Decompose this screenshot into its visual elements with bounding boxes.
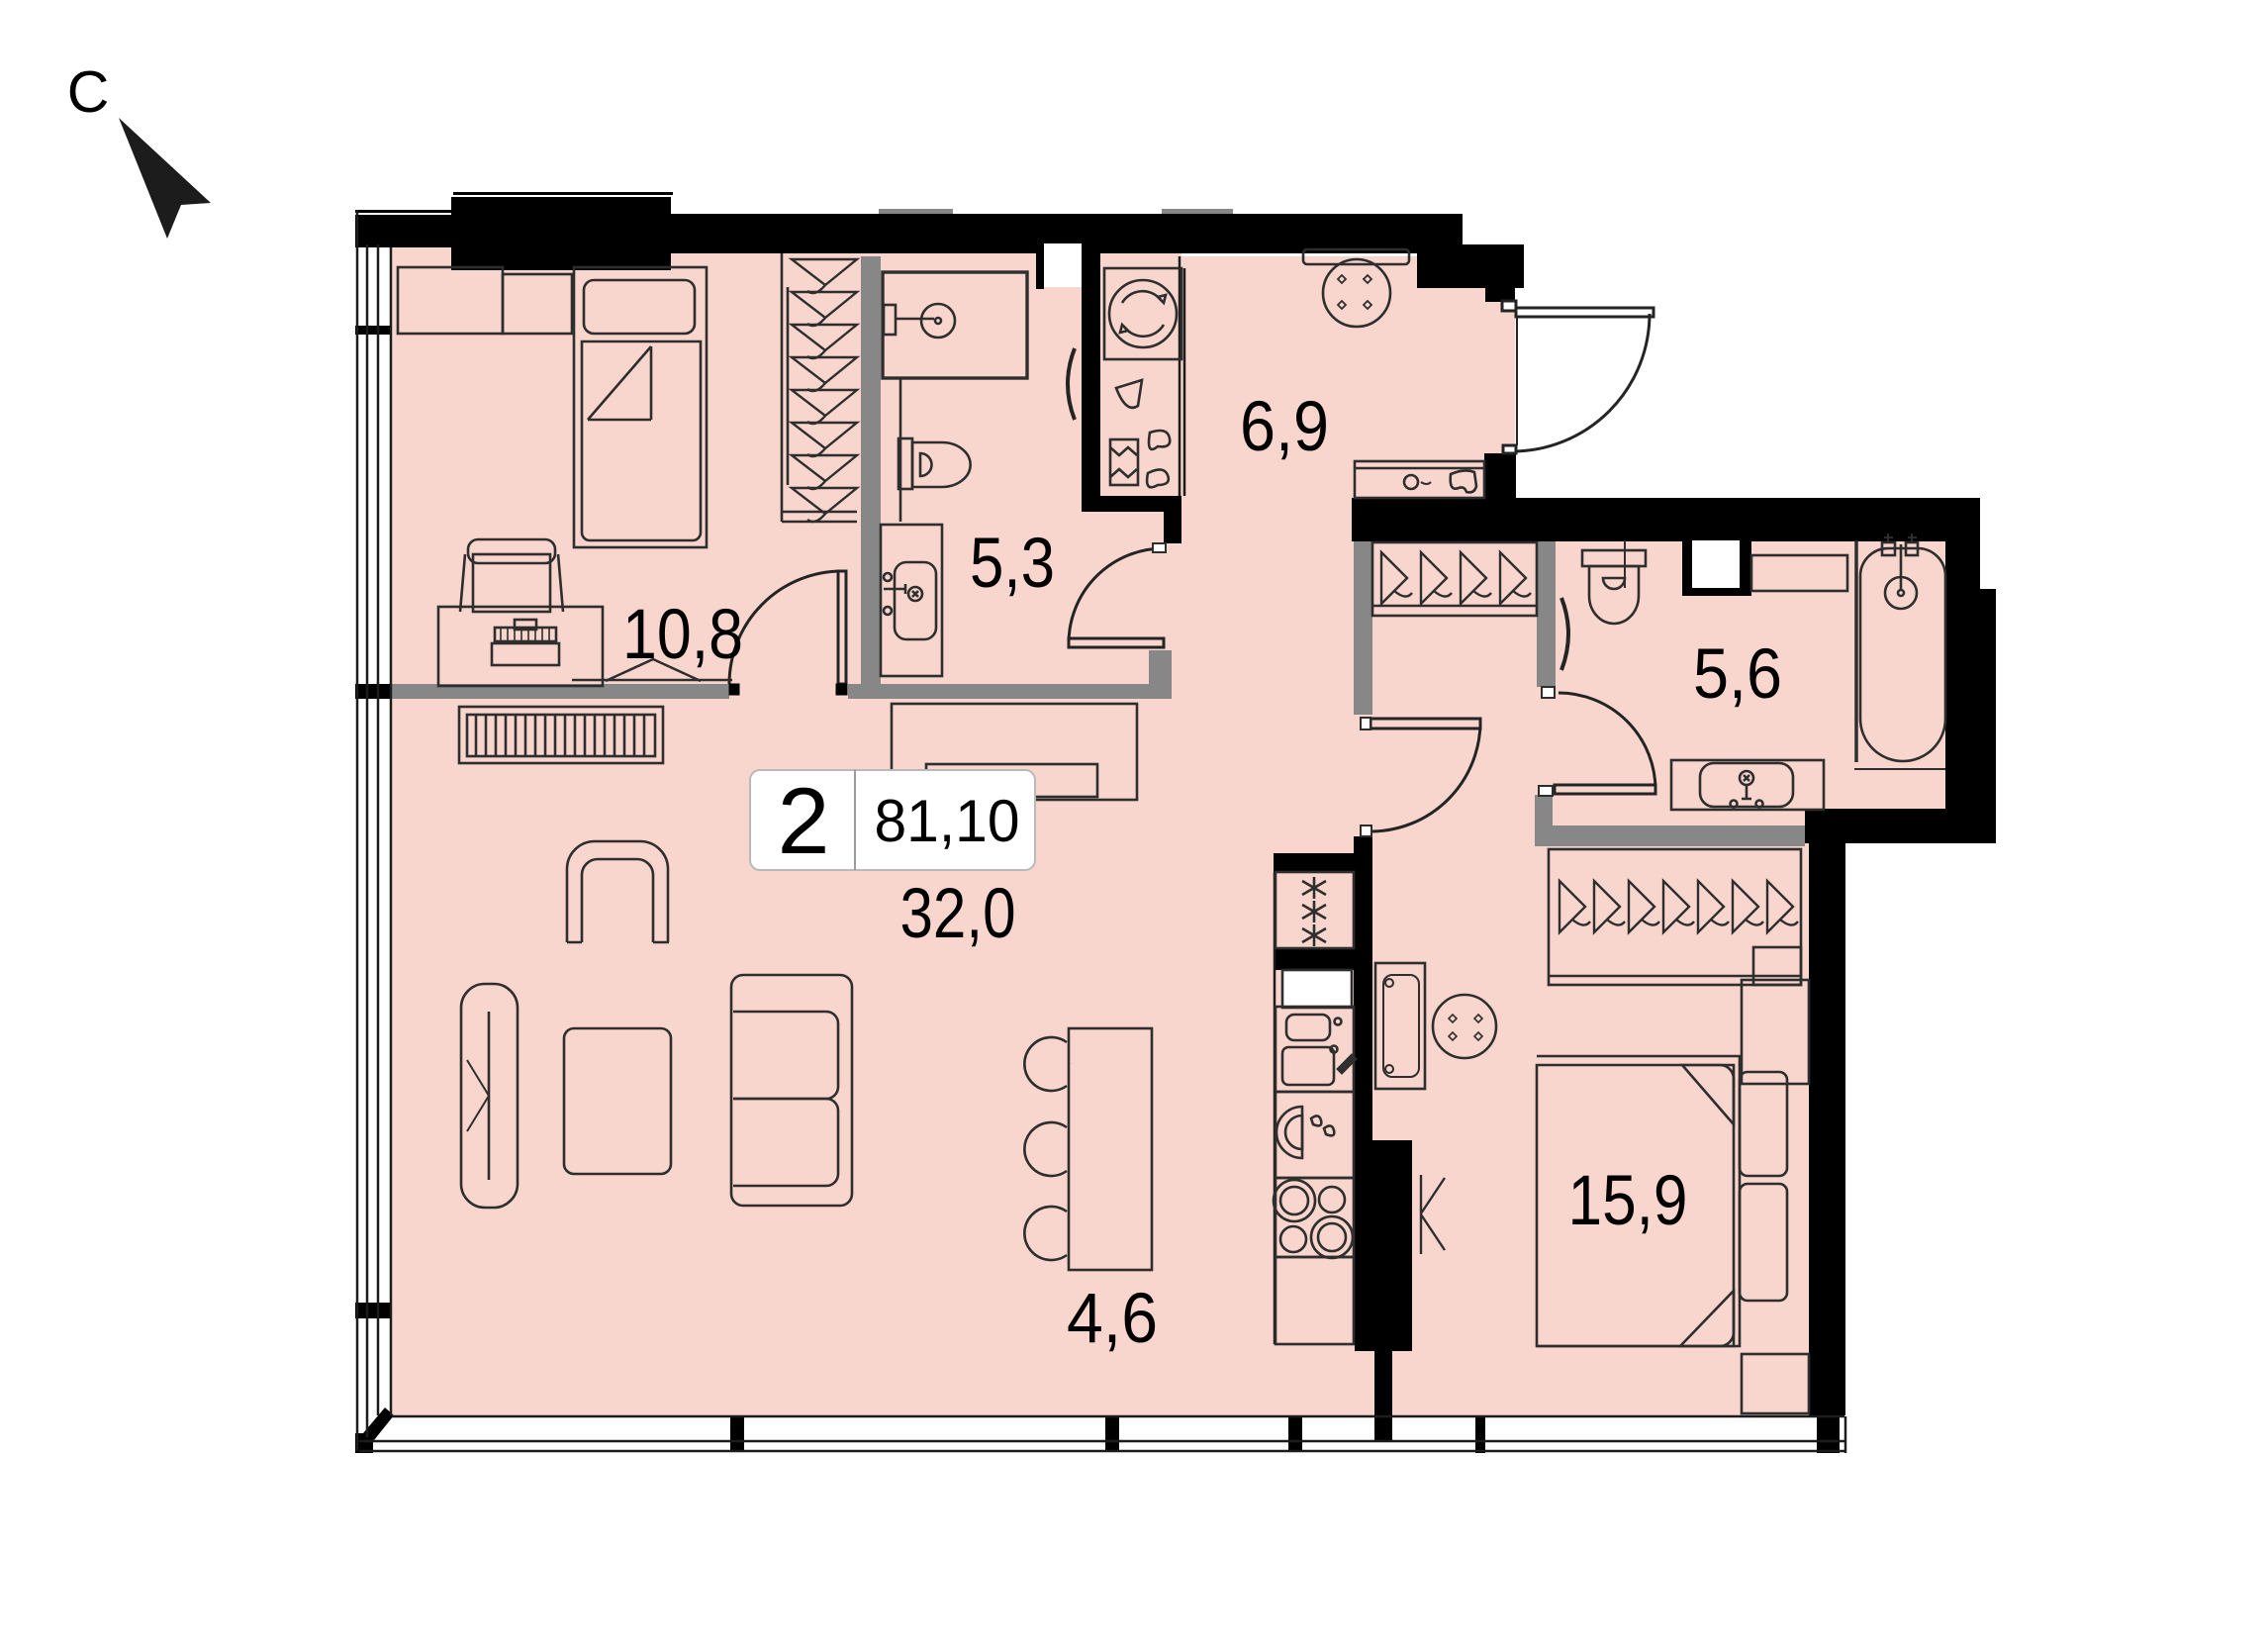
svg-text:81,10: 81,10 [875,788,1020,854]
svg-text:15,9: 15,9 [1568,1162,1688,1240]
svg-text:5,6: 5,6 [1693,635,1782,714]
svg-text:5,3: 5,3 [970,525,1055,603]
svg-text:32,0: 32,0 [900,875,1016,953]
svg-text:2: 2 [778,769,830,874]
svg-text:4,6: 4,6 [1067,1280,1158,1358]
svg-text:10,8: 10,8 [622,596,743,674]
svg-text:С: С [67,59,110,125]
svg-text:6,9: 6,9 [1240,388,1329,466]
